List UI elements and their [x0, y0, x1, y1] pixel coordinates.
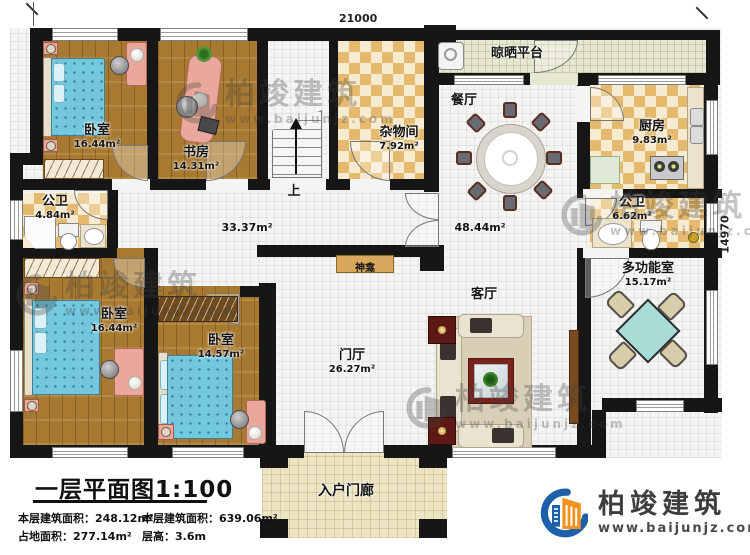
stove-burner-2 [668, 161, 679, 172]
wall-storage-right [424, 38, 439, 192]
chair-bm [230, 410, 249, 429]
toilet-bathR-bowl [642, 229, 660, 250]
room-label-multi: 多功能室 15.17m² [622, 262, 674, 289]
nightstand-tl-2 [43, 139, 58, 152]
stat-label: 占地面积： [18, 530, 73, 543]
stat-total-area: 本层建筑面积：639.06m² [142, 510, 278, 526]
room-label-porch: 入户门廊 [318, 483, 374, 499]
door-gap-bedroom-bl [117, 248, 144, 258]
floor-plan: 神龛 卧室 16.44m² 书房 14.31m² 杂物间 7.92m² 晾晒平台… [0, 0, 750, 555]
company-url: www.baijunjz.com [598, 521, 750, 536]
room-area: 14.57m² [198, 349, 244, 361]
window-bedroom-bl-left [10, 350, 23, 412]
wall-left-upper [30, 28, 43, 165]
wall-stairs-storage [329, 38, 338, 188]
dim-tick-tl [26, 3, 39, 16]
room-area: 7.92m² [379, 141, 418, 153]
room-area: 4.84m² [35, 210, 74, 222]
nightstand-bm [158, 424, 174, 440]
room-area: 16.44m² [91, 323, 137, 335]
room-area: 26.27m² [329, 364, 375, 376]
window-dining [454, 75, 524, 85]
dining-chair-s [503, 195, 517, 211]
room-label-platform: 晾晒平台 [491, 47, 543, 62]
bed-bm [167, 355, 233, 439]
stat-value: 639.06m² [219, 512, 278, 525]
toilet-bowl-bathL [60, 233, 77, 250]
shrine-label: 神龛 [355, 263, 375, 274]
room-area: 9.83m² [632, 135, 671, 147]
lamp-bl [128, 376, 142, 390]
wall-dining-corner [420, 245, 444, 271]
stairs-arrow-head [290, 118, 302, 129]
wardrobe-bl [24, 258, 100, 278]
room-label-bedroom-bl: 卧室 16.44m² [91, 308, 137, 335]
room-label-kitchen: 厨房 9.83m² [632, 120, 671, 147]
plan-title: 一层平面图1:100 [35, 470, 233, 504]
window-kitchen-top [598, 75, 686, 85]
wall-bed-divider [144, 248, 158, 458]
dining-chair-n [503, 102, 517, 118]
shrine-cabinet: 神龛 [336, 255, 394, 273]
pillow-tl-2 [53, 84, 65, 103]
chair-bl [100, 360, 119, 379]
wardrobe-tl [44, 159, 104, 179]
window-kitchen-right [706, 100, 718, 155]
porch-pillar-br [419, 519, 447, 538]
room-area: 15.17m² [622, 277, 674, 289]
stat-label: 本层建筑面积： [18, 512, 95, 525]
room-name: 书房 [173, 146, 219, 161]
dining-chair-e [546, 151, 562, 165]
sofa-top-cushion [470, 318, 492, 333]
stove-burner-1 [654, 161, 665, 172]
sink-bathR [598, 223, 628, 245]
stat-floor-height: 层高：3.6m [142, 528, 206, 544]
company-name: 柏竣建筑 [598, 491, 750, 518]
stat-value: 277.14m² [73, 530, 132, 543]
wall-study-stairs [257, 38, 268, 188]
study-plant [196, 46, 212, 62]
wall-left-lower [10, 153, 23, 458]
lamp-bm [248, 426, 262, 440]
room-name: 卧室 [198, 334, 244, 349]
sofa-left-cushion-2 [440, 396, 456, 418]
living-cabinet-top [428, 316, 456, 344]
stat-label: 层高： [142, 530, 175, 543]
room-name: 卧室 [74, 124, 120, 139]
room-name: 多功能室 [622, 262, 674, 277]
study-chair [176, 96, 198, 118]
stat-value: 3.6m [175, 530, 206, 543]
door-gap-kitchen [577, 86, 590, 122]
washing-machine-door [444, 48, 457, 61]
room-label-bedroom-bm: 卧室 14.57m² [198, 334, 244, 361]
wall-bed-study [147, 38, 158, 188]
stool-tl [110, 56, 129, 75]
dimension-right: 14970 [719, 215, 732, 253]
room-area: 14.31m² [173, 161, 219, 173]
sofa-bottom [458, 424, 524, 448]
kitchen-sink-2 [690, 126, 704, 144]
hallway-area-label: 33.37m² [221, 221, 272, 234]
room-label-bedroom-tl: 卧室 16.44m² [74, 124, 120, 151]
tv-console [569, 330, 579, 424]
window-bathL-left [10, 200, 23, 240]
pillow-tl-1 [53, 63, 65, 82]
plan-title-underline [33, 500, 207, 503]
kitchen-cabinet [590, 156, 620, 184]
room-label-living: 客厅 [471, 288, 497, 303]
dim-line-left-edge [33, 2, 34, 26]
open-area-label: 48.44m² [454, 221, 505, 234]
vanity-lamp-tl [130, 48, 144, 62]
window-multi-bottom [636, 400, 684, 412]
stat-label: 本层建筑面积： [142, 512, 219, 525]
room-name: 杂物间 [379, 126, 418, 141]
window-bathR-right [706, 203, 718, 233]
coffee-table-plant [483, 372, 498, 387]
living-cabinet-bottom [428, 417, 456, 445]
window-living-bottom [452, 447, 556, 458]
room-label-study: 书房 14.31m² [173, 146, 219, 173]
room-name: 卧室 [91, 308, 137, 323]
dining-chair-w [456, 151, 472, 165]
wardrobe-bm [158, 296, 238, 322]
room-area: 6.62m² [612, 211, 651, 223]
room-name: 客厅 [471, 288, 497, 303]
dim-tick-tr [696, 7, 709, 20]
bathR-brush [688, 232, 699, 243]
stairs-arrow-shaft [295, 128, 297, 174]
wall-west-step [10, 153, 43, 165]
porch-pillar-tl [260, 450, 288, 468]
porch-pillar-tr [419, 450, 447, 468]
wall-bathL-right [107, 185, 118, 257]
nightstand-tl-1 [43, 42, 58, 55]
room-label-foyer: 门厅 26.27m² [329, 349, 375, 376]
room-name: 公卫 [612, 196, 651, 211]
room-name: 公卫 [35, 195, 74, 210]
room-label-storage: 杂物间 7.92m² [379, 126, 418, 153]
stat-footprint: 占地面积：277.14m² [18, 528, 132, 544]
door-gap-study [206, 179, 248, 190]
nightstand-bl-2 [24, 399, 39, 412]
company-logo-icon [540, 486, 588, 540]
sofa-bottom-cushion [492, 428, 514, 443]
stairs-up-label: 上 [287, 180, 300, 199]
window-bedroom-bl-bottom [52, 447, 128, 458]
room-label-bathL: 公卫 4.84m² [35, 195, 74, 222]
room-label-bathR: 公卫 6.62m² [612, 196, 651, 223]
stat-floor-area: 本层建筑面积：248.12m² [18, 510, 154, 526]
room-name: 厨房 [632, 120, 671, 135]
window-top-study [160, 28, 248, 41]
dining-table-center [502, 150, 518, 166]
room-area: 16.44m² [74, 139, 120, 151]
room-label-dining: 餐厅 [451, 94, 477, 109]
nightstand-bl-1 [24, 282, 39, 295]
wall-bathL-bottom [10, 248, 117, 258]
company-logo: 柏竣建筑 www.baijunjz.com [540, 486, 750, 540]
room-name: 餐厅 [451, 94, 477, 109]
pillow-bl-1 [34, 307, 47, 329]
room-name: 入户门廊 [318, 483, 374, 499]
window-bedroom-bm-bottom [172, 447, 244, 458]
pillow-bl-2 [34, 332, 47, 354]
room-name: 门厅 [329, 349, 375, 364]
window-multi-right [706, 290, 718, 365]
window-top-bedroom [52, 28, 118, 41]
dimension-top: 21000 [339, 12, 377, 25]
kitchen-sink-1 [690, 108, 704, 126]
door-gap-platform [530, 73, 578, 85]
sink-bathL [84, 228, 104, 245]
door-gap-multi [583, 248, 629, 258]
room-name: 晾晒平台 [491, 47, 543, 62]
wall-platform-top [436, 30, 718, 40]
